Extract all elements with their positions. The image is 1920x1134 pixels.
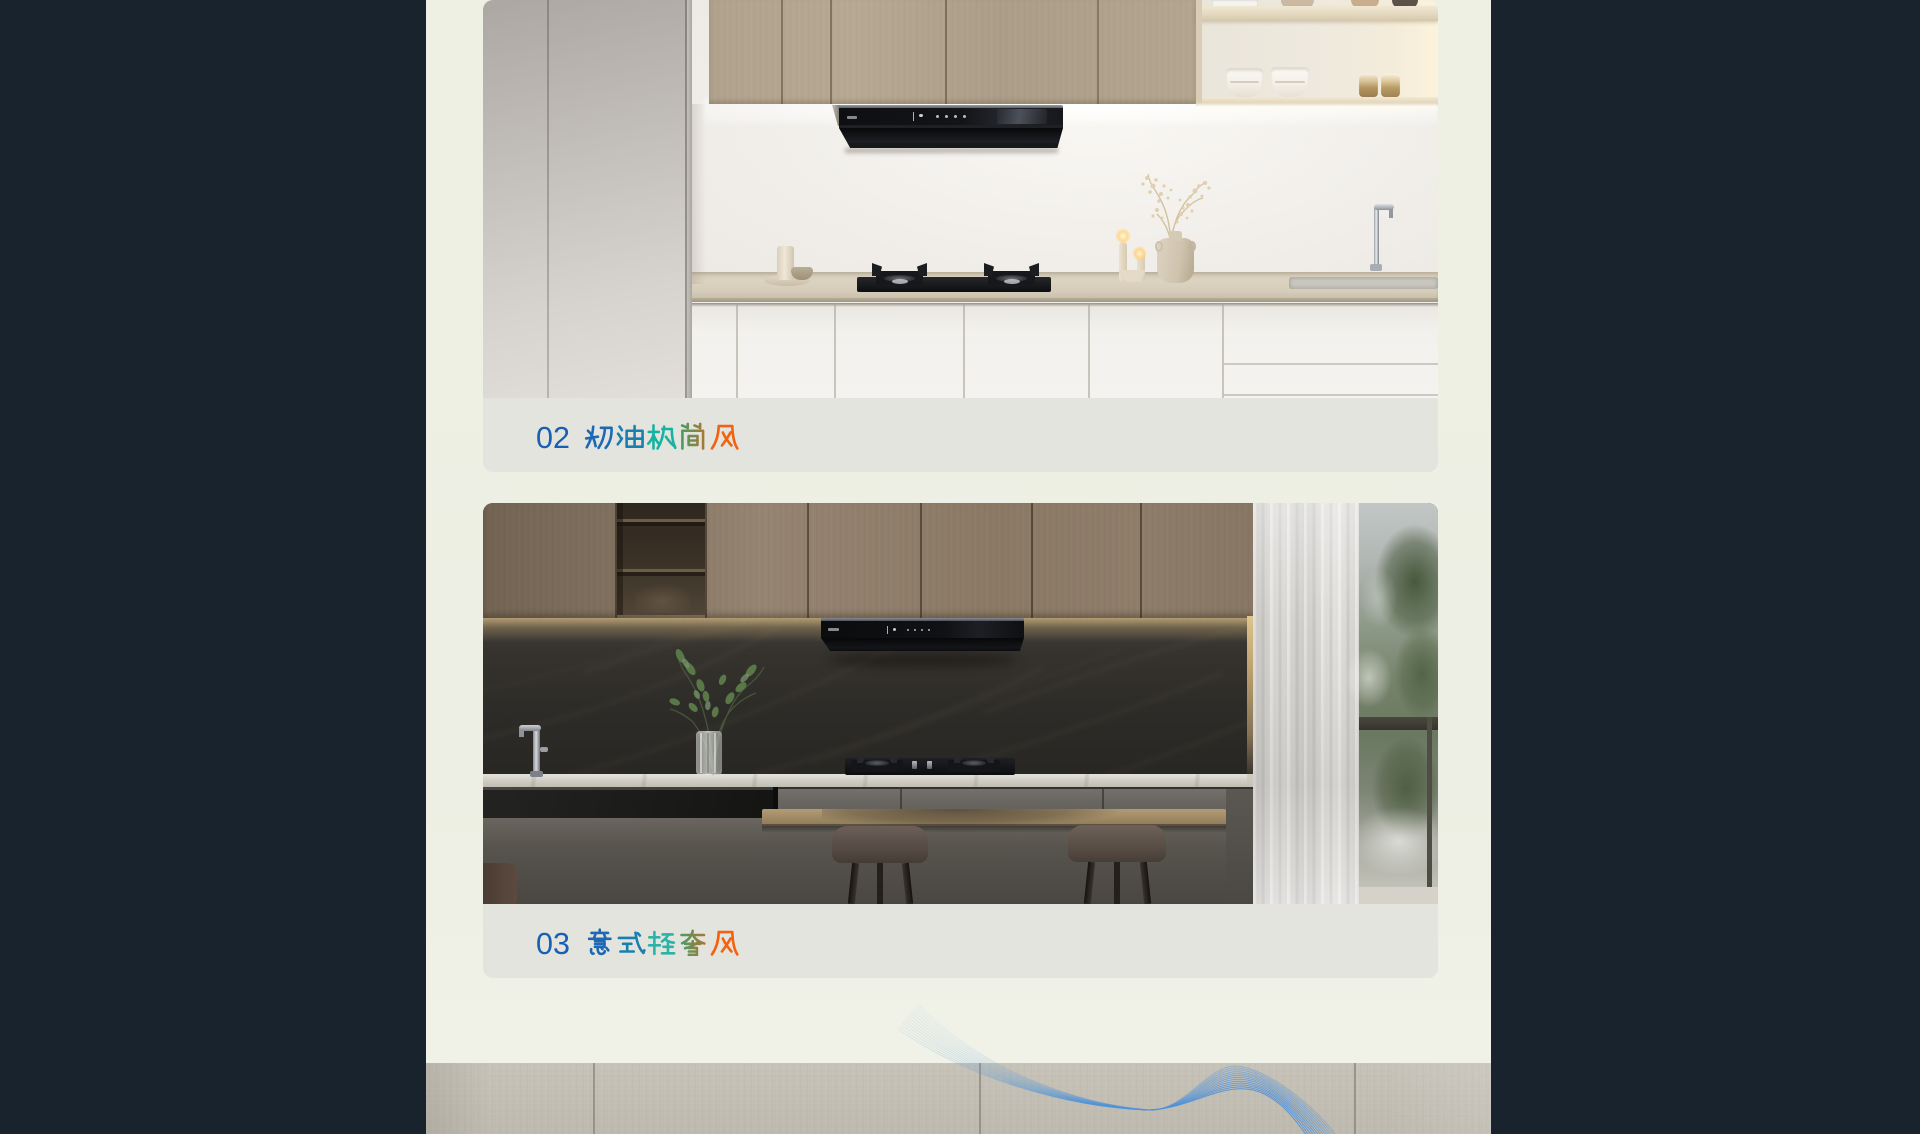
svg-text:03: 03 (536, 927, 570, 961)
svg-text:02: 02 (536, 421, 570, 455)
